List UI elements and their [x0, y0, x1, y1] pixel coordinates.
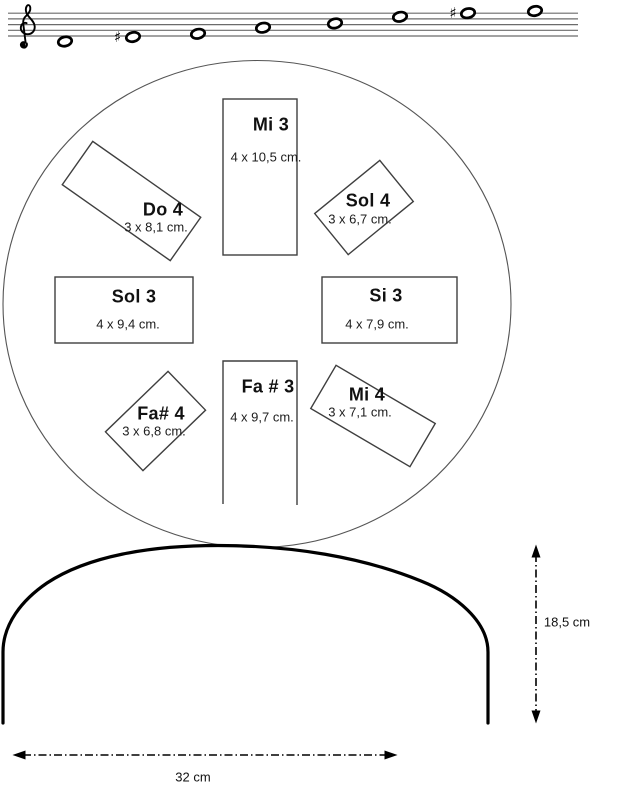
sharp-icon: ♯ [114, 28, 121, 46]
arrowhead-down [532, 711, 540, 722]
tongue-size-do4: 3 x 8,1 cm. [124, 220, 188, 235]
treble-clef-icon [21, 5, 35, 48]
tongue-size-sol4: 3 x 6,7 cm. [328, 212, 392, 227]
whole-note-2 [125, 31, 140, 43]
tongue-label-sol4: Sol 4 [346, 191, 391, 212]
tongue-label-mi3: Mi 3 [253, 115, 289, 136]
whole-notes [57, 5, 542, 47]
drum-plan-sheet: ♯ ♯ [0, 0, 623, 800]
tongue-label-mi4: Mi 4 [349, 385, 385, 406]
tongue-size-sol3: 4 x 9,4 cm. [96, 317, 160, 332]
tongue-label-do4: Do 4 [143, 200, 183, 221]
height-dimension-label: 18,5 cm [544, 615, 590, 630]
tongue-size-mi4: 3 x 7,1 cm. [328, 405, 392, 420]
sharp-icon: ♯ [450, 4, 457, 22]
tongue-size-si3: 4 x 7,9 cm. [345, 317, 409, 332]
tongue-size-fa-sharp-3: 4 x 9,7 cm. [230, 410, 294, 425]
whole-note-4 [255, 22, 270, 34]
tongue-label-si3: Si 3 [369, 286, 402, 307]
line-art: ♯ ♯ [0, 0, 623, 800]
whole-note-3 [190, 28, 205, 40]
staff: ♯ ♯ [8, 4, 578, 47]
whole-note-7 [460, 7, 475, 19]
whole-note-1 [57, 36, 72, 48]
tongue-label-sol3: Sol 3 [112, 287, 157, 308]
tongue-label-fa-sharp-3: Fa # 3 [242, 377, 295, 398]
drum-side-profile [3, 546, 488, 724]
arrowhead-right [385, 751, 396, 759]
tongue-size-fa-sharp-4: 3 x 6,8 cm. [122, 424, 186, 439]
arrowhead-left [14, 751, 25, 759]
whole-note-8 [527, 5, 542, 17]
tongue-label-fa-sharp-4: Fa# 4 [137, 404, 185, 425]
tongue-size-mi3: 4 x 10,5 cm. [231, 150, 302, 165]
arrowhead-up [532, 546, 540, 557]
dimension-lines [14, 546, 540, 759]
width-dimension-label: 32 cm [175, 770, 210, 785]
